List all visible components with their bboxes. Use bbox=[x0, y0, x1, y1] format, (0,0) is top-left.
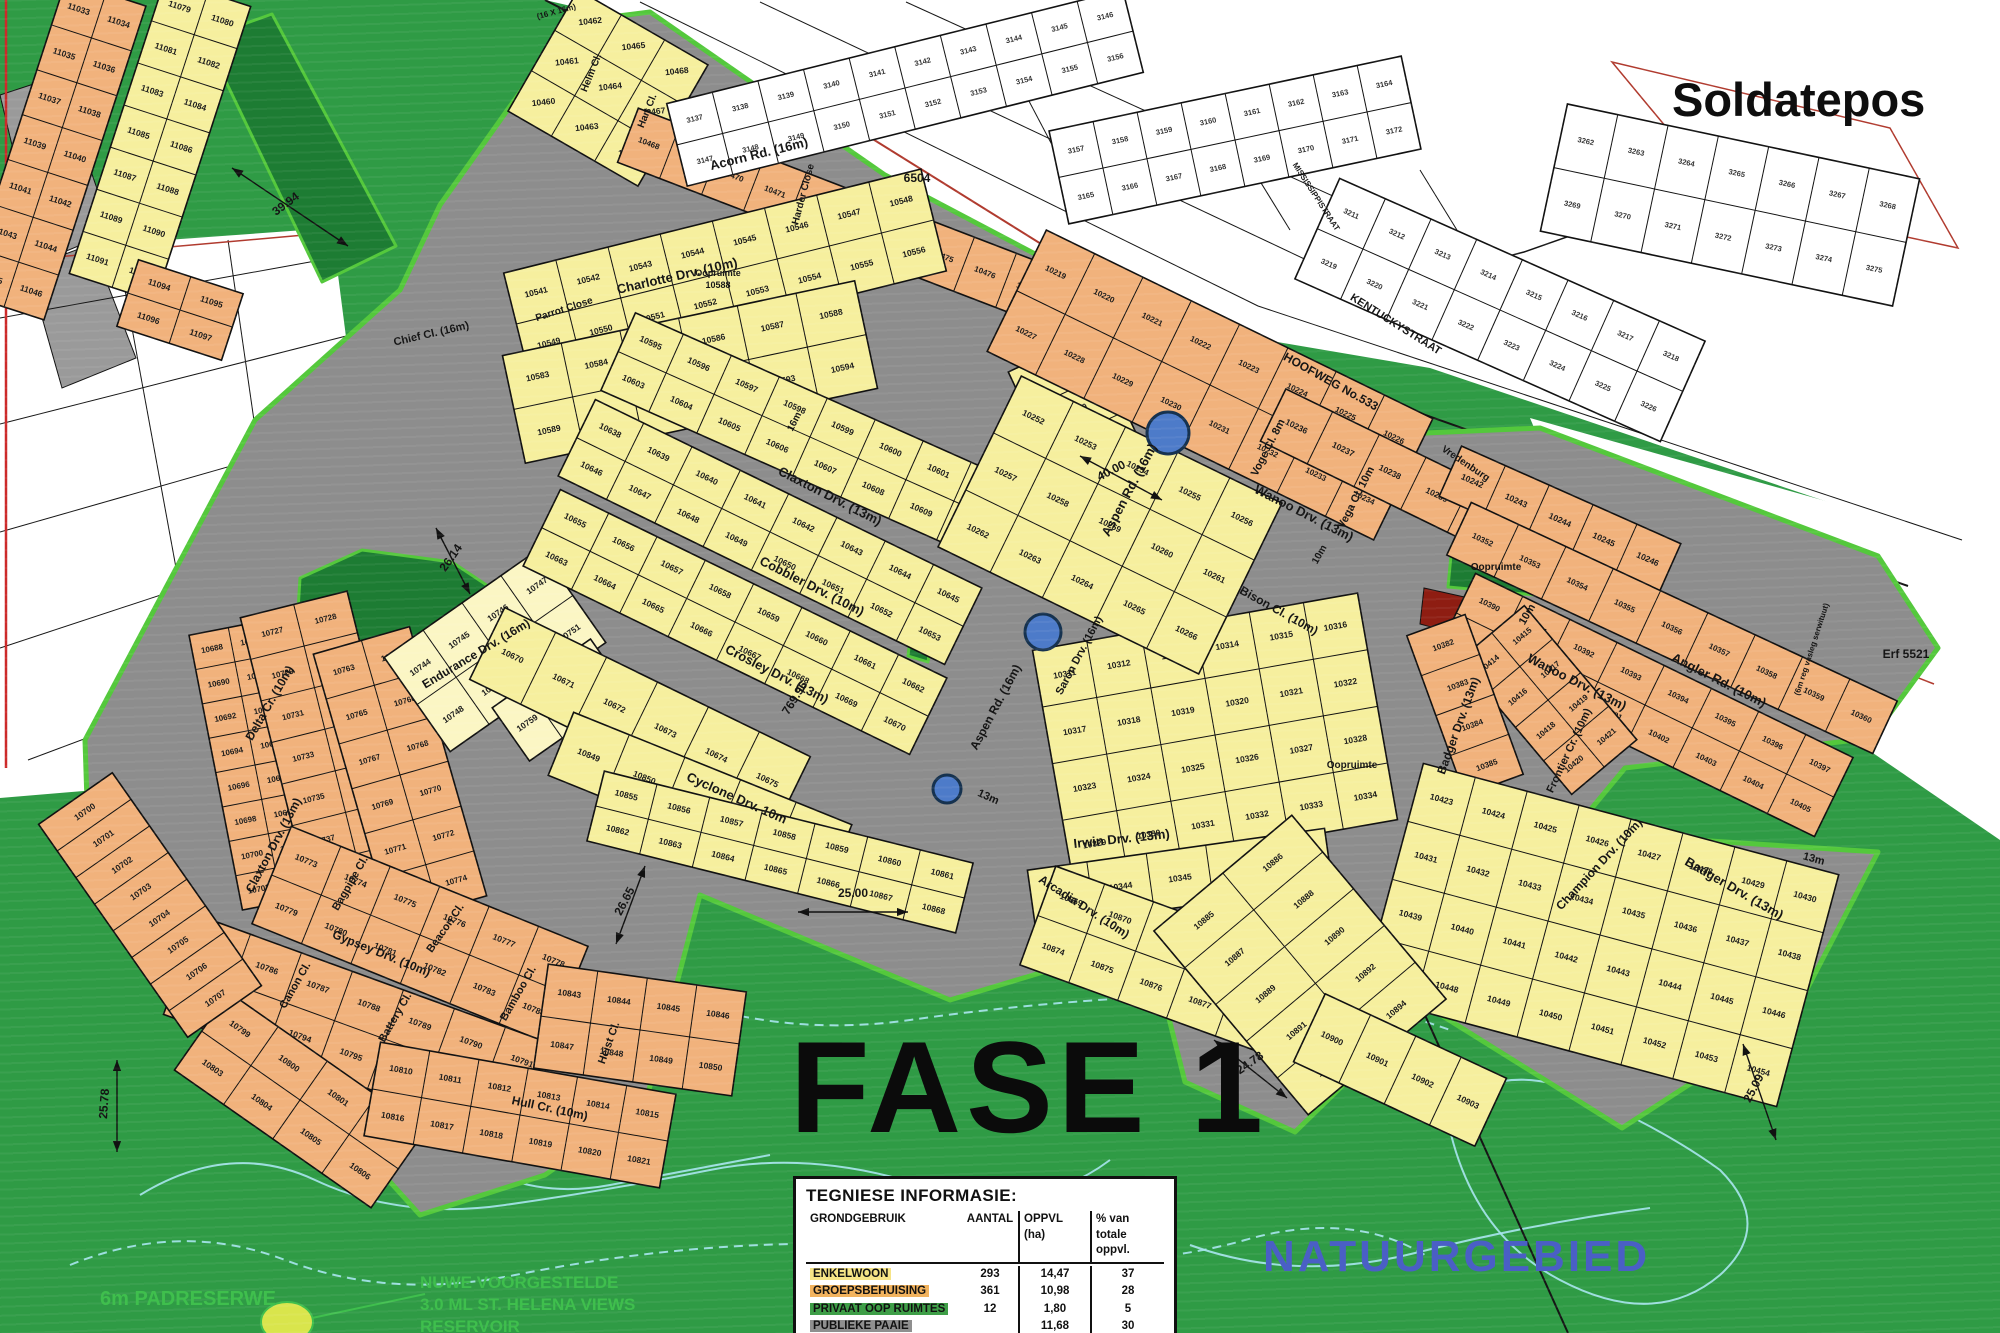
roundabout bbox=[933, 775, 961, 803]
landuse-label-text: PUBLIEKE PAAIE bbox=[810, 1320, 912, 1332]
dimension-label: 25.00 bbox=[838, 886, 868, 900]
table-title: TEGNIESE INFORMASIE: bbox=[806, 1186, 1164, 1206]
dimension-label: 25.78 bbox=[96, 1088, 112, 1119]
reservoir-note-line3: RESERVOIR bbox=[420, 1316, 740, 1333]
neighbourhood-title: Soldatepos bbox=[1672, 72, 1925, 127]
landuse-percent: 5 bbox=[1090, 1301, 1164, 1319]
landuse-area: 14,47 bbox=[1018, 1266, 1090, 1284]
technical-info-table: TEGNIESE INFORMASIE: GRONDGEBRUIK AANTAL… bbox=[793, 1176, 1177, 1333]
road-reserve-label: 6m PADRESERWE bbox=[100, 1288, 276, 1311]
map-annotation: 6504 bbox=[904, 171, 931, 185]
col-header-grondgebruik: GRONDGEBRUIK bbox=[806, 1211, 962, 1264]
reservoir-note: NUWE VOORGESTELDE 3.0 ML ST. HELENA VIEW… bbox=[420, 1272, 740, 1333]
landuse-label: PRIVAAT OOP RUIMTES bbox=[806, 1301, 962, 1319]
reservoir-note-line1: NUWE VOORGESTELDE bbox=[420, 1272, 740, 1294]
landuse-count bbox=[962, 1318, 1018, 1333]
landuse-label: GROEPSBEHUISING bbox=[806, 1283, 962, 1301]
map-annotation: Oopruimte bbox=[695, 268, 741, 278]
table-grid: GRONDGEBRUIK AANTAL OPPVL (ha) % van tot… bbox=[806, 1211, 1164, 1333]
map-annotation: Oopruimte bbox=[1471, 562, 1522, 573]
landuse-count: 361 bbox=[962, 1283, 1018, 1301]
roundabout bbox=[1025, 614, 1061, 650]
col-header-aantal: AANTAL bbox=[962, 1211, 1018, 1264]
phase-title: FASE 1 bbox=[790, 1012, 1268, 1162]
landuse-area: 11,68 bbox=[1018, 1318, 1090, 1333]
landuse-count: 12 bbox=[962, 1301, 1018, 1319]
landuse-percent: 28 bbox=[1090, 1283, 1164, 1301]
col-header-percent: % van totale oppvl. bbox=[1090, 1211, 1164, 1264]
landuse-area: 1,80 bbox=[1018, 1301, 1090, 1319]
landuse-percent: 37 bbox=[1090, 1266, 1164, 1284]
site-plan-page: 1103311034110351103611037110381103911040… bbox=[0, 0, 2000, 1333]
landuse-percent: 30 bbox=[1090, 1318, 1164, 1333]
landuse-label: ENKELWOON bbox=[806, 1266, 962, 1284]
landuse-label-text: GROEPSBEHUISING bbox=[810, 1285, 929, 1297]
landuse-label: PUBLIEKE PAAIE bbox=[806, 1318, 962, 1333]
landuse-area: 10,98 bbox=[1018, 1283, 1090, 1301]
landuse-label-text: PRIVAAT OOP RUIMTES bbox=[810, 1303, 948, 1315]
landuse-count: 293 bbox=[962, 1266, 1018, 1284]
map-annotation: Oopruimte bbox=[1327, 760, 1378, 771]
map-annotation: 10588 bbox=[705, 280, 730, 290]
map-annotation: Erf 5521 bbox=[1883, 647, 1930, 661]
reservoir-note-line2: 3.0 ML ST. HELENA VIEWS bbox=[420, 1294, 740, 1316]
landuse-label-text: ENKELWOON bbox=[810, 1268, 891, 1280]
nature-area-label: NATUURGEBIED bbox=[1263, 1232, 1650, 1282]
col-header-oppvl: OPPVL (ha) bbox=[1018, 1211, 1090, 1264]
